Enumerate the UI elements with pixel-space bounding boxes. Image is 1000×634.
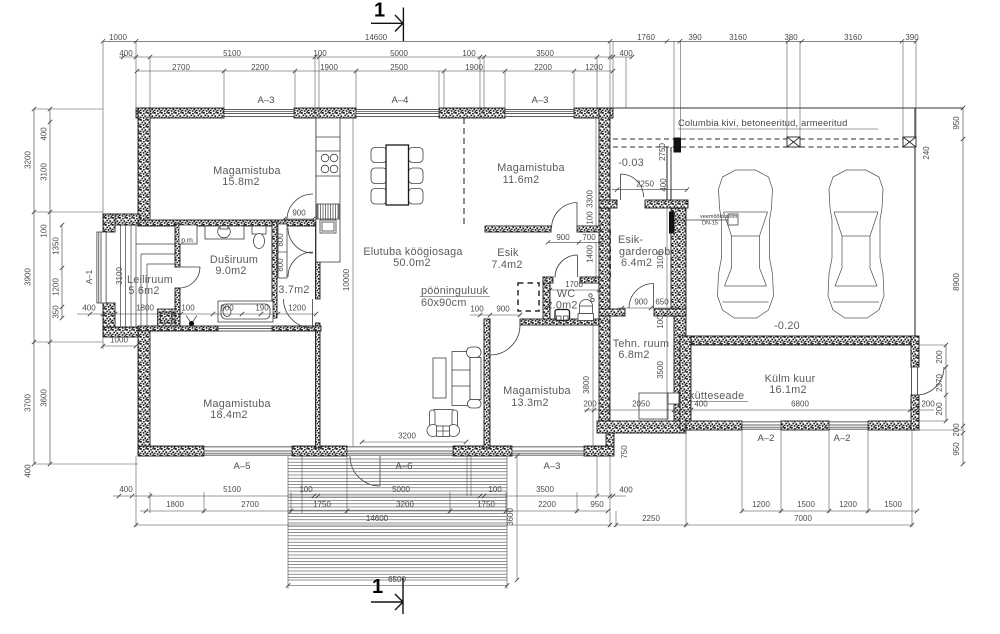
svg-text:5000: 5000	[390, 49, 408, 58]
svg-text:950: 950	[952, 116, 961, 130]
svg-text:400: 400	[82, 304, 96, 313]
svg-text:60x90cm: 60x90cm	[421, 297, 467, 309]
svg-text:A–2: A–2	[834, 433, 851, 444]
svg-text:1900: 1900	[320, 63, 338, 72]
svg-text:400: 400	[40, 127, 49, 141]
svg-text:1500: 1500	[884, 500, 902, 509]
svg-text:7.4m2: 7.4m2	[491, 259, 522, 271]
svg-text:A–2: A–2	[758, 433, 775, 444]
svg-text:p.m.: p.m.	[181, 238, 195, 245]
svg-text:2250: 2250	[642, 514, 660, 523]
svg-text:3160: 3160	[729, 33, 747, 42]
svg-text:7000: 7000	[794, 514, 812, 523]
svg-text:2200: 2200	[534, 63, 552, 72]
svg-text:1200: 1200	[585, 63, 603, 72]
svg-text:Esik: Esik	[497, 247, 519, 259]
svg-text:3600: 3600	[506, 508, 515, 526]
svg-text:3800: 3800	[582, 376, 591, 394]
svg-text:950: 950	[590, 500, 604, 509]
svg-text:8900: 8900	[952, 273, 961, 291]
svg-text:100: 100	[462, 49, 476, 58]
svg-text:900: 900	[220, 304, 234, 313]
svg-text:100: 100	[299, 485, 313, 494]
svg-text:2050: 2050	[632, 400, 650, 409]
svg-text:3300: 3300	[586, 190, 595, 208]
svg-text:240: 240	[922, 146, 931, 160]
svg-text:3200: 3200	[398, 432, 416, 441]
svg-text:200: 200	[583, 400, 597, 409]
svg-text:950: 950	[952, 442, 961, 456]
svg-text:2750: 2750	[658, 143, 667, 161]
svg-text:50.0m2: 50.0m2	[393, 257, 431, 269]
svg-text:100: 100	[488, 485, 502, 494]
svg-text:390: 390	[688, 33, 702, 42]
svg-text:900: 900	[496, 305, 510, 314]
svg-text:3100: 3100	[656, 251, 665, 269]
svg-text:100: 100	[40, 224, 49, 238]
svg-text:380: 380	[784, 33, 798, 42]
svg-text:100: 100	[181, 304, 195, 313]
svg-text:3100: 3100	[40, 163, 49, 181]
svg-text:400: 400	[119, 485, 133, 494]
svg-text:1700: 1700	[565, 280, 583, 289]
svg-text:5100: 5100	[223, 485, 241, 494]
svg-text:1350: 1350	[52, 237, 61, 255]
svg-text:100: 100	[656, 315, 665, 329]
svg-text:400: 400	[619, 49, 633, 58]
svg-text:400: 400	[24, 464, 33, 478]
svg-text:veemõõdusõlm: veemõõdusõlm	[700, 214, 738, 220]
svg-text:2200: 2200	[538, 500, 556, 509]
svg-text:2.0m2: 2.0m2	[546, 300, 577, 312]
svg-text:3160: 3160	[844, 33, 862, 42]
svg-text:A–5: A–5	[234, 461, 251, 472]
svg-text:pööninguluuk: pööninguluuk	[421, 285, 489, 297]
svg-text:5100: 5100	[223, 49, 241, 58]
svg-text:13.3m2: 13.3m2	[511, 397, 549, 409]
svg-text:3200: 3200	[396, 500, 414, 509]
svg-text:A–1: A–1	[85, 269, 94, 284]
svg-text:1760: 1760	[637, 33, 655, 42]
svg-text:800: 800	[276, 258, 285, 272]
svg-text:100: 100	[586, 211, 595, 225]
svg-text:A–3: A–3	[258, 95, 275, 106]
svg-text:DN-15: DN-15	[702, 221, 718, 227]
svg-text:200: 200	[935, 402, 944, 416]
svg-text:Esik-: Esik-	[618, 234, 643, 246]
svg-text:6.8m2: 6.8m2	[618, 349, 649, 361]
svg-text:900: 900	[556, 233, 570, 242]
svg-text:A–4: A–4	[392, 95, 409, 106]
svg-text:A–6: A–6	[396, 461, 413, 472]
svg-text:2500: 2500	[390, 63, 408, 72]
svg-text:800: 800	[276, 233, 285, 247]
svg-text:1400: 1400	[586, 245, 595, 263]
svg-text:900: 900	[292, 209, 306, 218]
svg-text:5.6m2: 5.6m2	[128, 285, 159, 297]
svg-text:3200: 3200	[24, 151, 33, 169]
svg-text:1500: 1500	[797, 500, 815, 509]
svg-text:400: 400	[119, 49, 133, 58]
svg-text:2250: 2250	[636, 180, 654, 189]
svg-text:400: 400	[619, 486, 633, 495]
svg-text:Magamistuba: Magamistuba	[497, 162, 565, 174]
svg-text:11.6m2: 11.6m2	[503, 174, 540, 186]
svg-text:A–3: A–3	[532, 95, 549, 106]
svg-text:1: 1	[374, 0, 385, 22]
svg-text:9.0m2: 9.0m2	[215, 265, 246, 277]
svg-text:1000: 1000	[109, 33, 127, 42]
svg-text:2700: 2700	[241, 500, 259, 509]
svg-text:3700: 3700	[24, 394, 33, 412]
svg-text:1750: 1750	[477, 500, 495, 509]
svg-text:2370: 2370	[935, 374, 944, 392]
svg-text:1200: 1200	[52, 278, 61, 296]
svg-text:15.8m2: 15.8m2	[222, 176, 260, 188]
svg-text:5000: 5000	[392, 485, 410, 494]
svg-text:900: 900	[634, 298, 648, 307]
svg-text:400: 400	[659, 178, 668, 192]
svg-text:10000: 10000	[342, 268, 351, 291]
svg-text:-0.03: -0.03	[618, 157, 644, 169]
svg-text:18.4m2: 18.4m2	[210, 409, 248, 421]
svg-text:190: 190	[255, 304, 269, 313]
svg-text:6500: 6500	[388, 575, 406, 584]
svg-text:1800: 1800	[136, 304, 154, 313]
svg-text:700: 700	[582, 233, 596, 242]
svg-text:6.4m2: 6.4m2	[621, 257, 652, 269]
svg-text:3900: 3900	[24, 268, 33, 286]
svg-text:3500: 3500	[536, 49, 554, 58]
svg-text:2700: 2700	[172, 63, 190, 72]
svg-text:3600: 3600	[40, 389, 49, 407]
svg-text:16.1m2: 16.1m2	[769, 384, 807, 396]
svg-text:14600: 14600	[366, 514, 389, 523]
svg-text:Columbia kivi, betoneeritud, a: Columbia kivi, betoneeritud, armeeritud	[678, 118, 848, 128]
svg-text:1200: 1200	[752, 500, 770, 509]
svg-text:1200: 1200	[288, 304, 306, 313]
svg-text:1: 1	[372, 576, 383, 598]
svg-text:750: 750	[620, 445, 629, 459]
svg-text:3500: 3500	[536, 485, 554, 494]
svg-text:100: 100	[470, 305, 484, 314]
svg-text:400: 400	[694, 400, 708, 409]
svg-text:1750: 1750	[313, 500, 331, 509]
svg-text:14600: 14600	[365, 33, 388, 42]
svg-text:650: 650	[655, 298, 669, 307]
svg-text:200: 200	[921, 400, 935, 409]
svg-text:Magamistuba: Magamistuba	[503, 385, 571, 397]
svg-text:6800: 6800	[791, 400, 809, 409]
svg-text:1900: 1900	[465, 63, 483, 72]
svg-text:1000: 1000	[110, 336, 128, 345]
svg-text:A–3: A–3	[544, 461, 561, 472]
svg-text:1800: 1800	[166, 500, 184, 509]
svg-text:3500: 3500	[656, 361, 665, 379]
svg-text:2200: 2200	[251, 63, 269, 72]
svg-text:3100: 3100	[115, 267, 124, 285]
svg-text:3.7m2: 3.7m2	[278, 284, 309, 296]
svg-text:200: 200	[935, 350, 944, 364]
svg-text:1200: 1200	[839, 500, 857, 509]
svg-text:-0.20: -0.20	[774, 320, 800, 332]
svg-text:350: 350	[52, 305, 61, 319]
